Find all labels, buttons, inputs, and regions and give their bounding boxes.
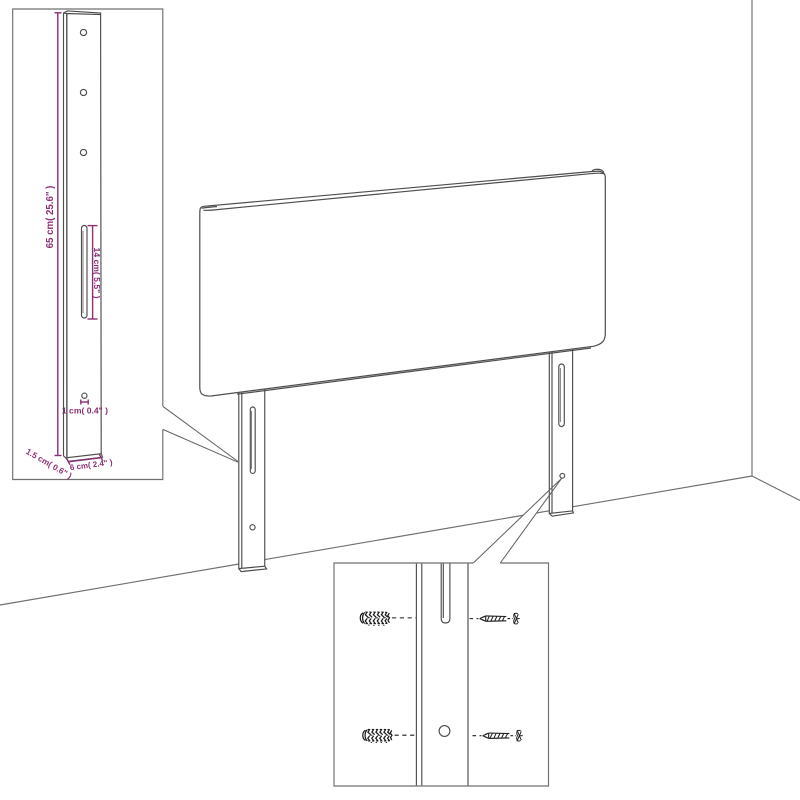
svg-text:65 cm( 25.6" ): 65 cm( 25.6" ) <box>45 186 56 249</box>
svg-text:1 cm( 0.4" ): 1 cm( 0.4" ) <box>62 406 108 416</box>
svg-text:14 cm( 5.5" ): 14 cm( 5.5" ) <box>92 248 102 299</box>
